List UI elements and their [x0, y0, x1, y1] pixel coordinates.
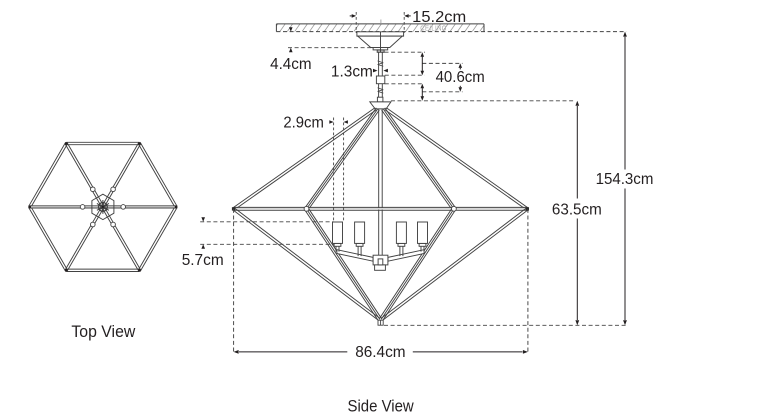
svg-text:86.4cm: 86.4cm [355, 344, 405, 361]
svg-text:1.3cm: 1.3cm [331, 64, 373, 81]
svg-text:154.3cm: 154.3cm [596, 171, 654, 188]
svg-text:40.6cm: 40.6cm [436, 69, 485, 86]
svg-text:63.5cm: 63.5cm [552, 202, 602, 219]
svg-text:5.7cm: 5.7cm [182, 252, 224, 269]
svg-text:4.4cm: 4.4cm [270, 56, 312, 73]
svg-text:2.9cm: 2.9cm [283, 115, 324, 132]
svg-text:Side View: Side View [348, 397, 415, 416]
svg-text:Top View: Top View [71, 322, 136, 341]
svg-text:15.2cm: 15.2cm [412, 9, 466, 26]
